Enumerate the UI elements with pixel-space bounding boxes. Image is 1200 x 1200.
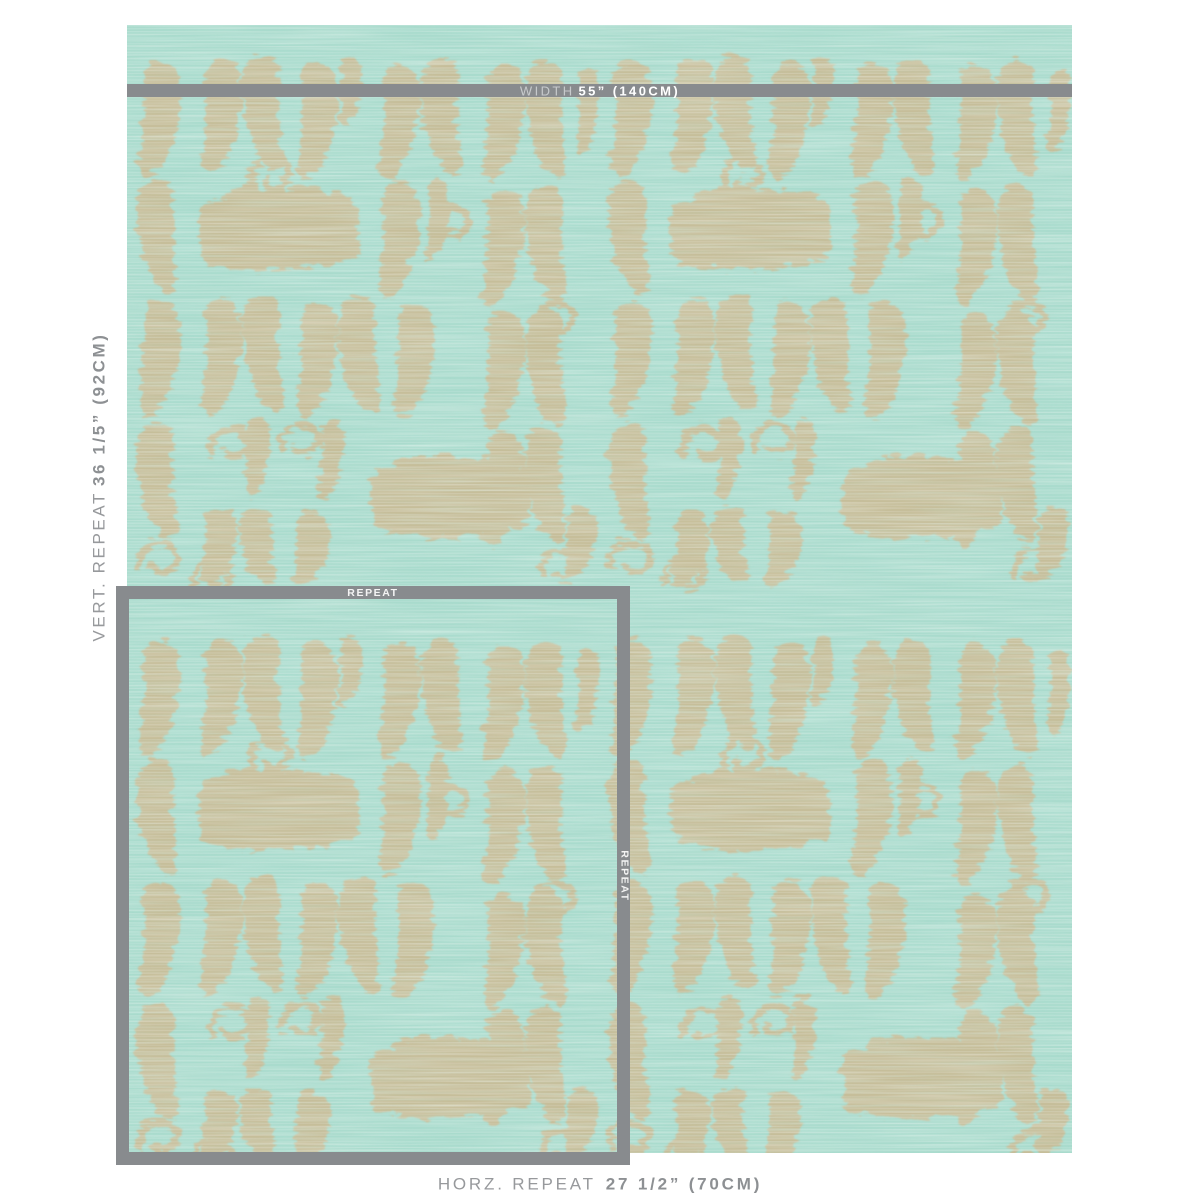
width-measure-label: WIDTH55” (140CM) [520,85,680,98]
fabric-swatch-page: WIDTH55” (140CM) REPEAT REPEAT VERT. REP… [0,0,1200,1200]
vertical-repeat-prefix: VERT. REPEAT [90,491,109,642]
repeat-outline-box [116,586,630,1165]
horizontal-repeat-label: HORZ. REPEAT27 1/2” (70CM) [438,1176,762,1193]
vertical-repeat-label: VERT. REPEAT36 1/5” (92CM) [91,332,108,641]
width-label-value: 55” (140CM) [579,84,681,99]
repeat-label-right: REPEAT [619,850,630,901]
vertical-repeat-value: 36 1/5” (92CM) [90,332,109,486]
horizontal-repeat-value: 27 1/2” (70CM) [606,1175,762,1194]
repeat-label-top: REPEAT [347,588,398,599]
horizontal-repeat-prefix: HORZ. REPEAT [438,1175,596,1194]
width-label-prefix: WIDTH [520,84,575,99]
